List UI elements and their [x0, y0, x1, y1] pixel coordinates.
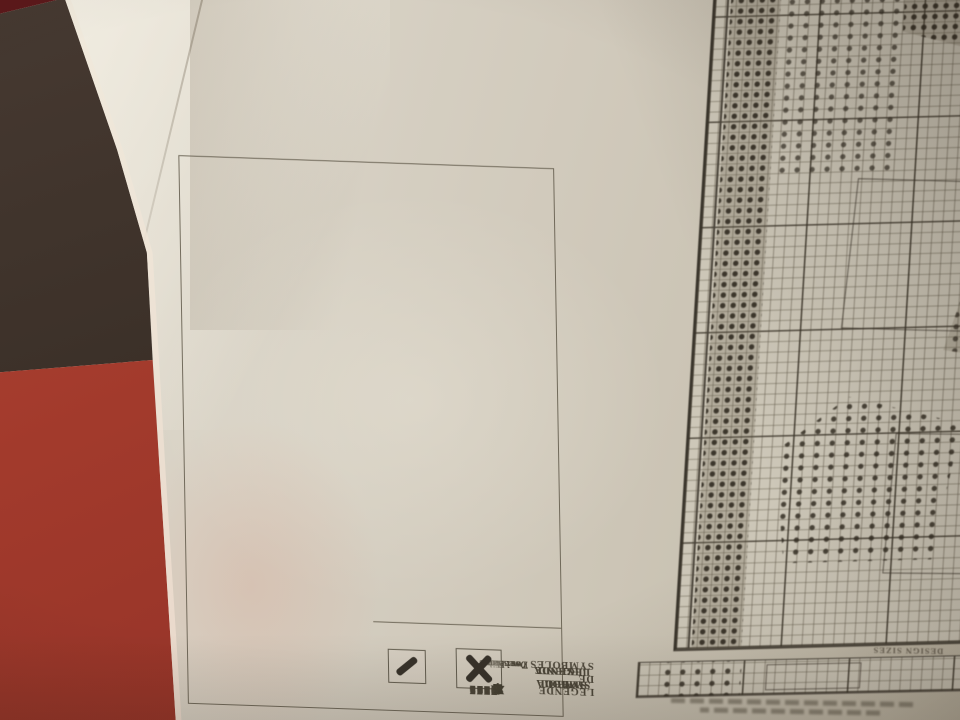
legend-document: SYMBOL LEGEND LEGENDE DE SYMBOLES SIMBOL…	[178, 155, 563, 717]
stitch-cluster	[896, 0, 960, 140]
dmc-code: 3834	[469, 681, 498, 697]
backstitch-outline	[765, 662, 862, 690]
design-sizes-caption: DESIGN SIZES	[858, 639, 958, 657]
stitch-cluster	[770, 0, 903, 179]
backstitch-outline	[841, 178, 960, 332]
chart-grid	[673, 0, 960, 651]
half-stitch-icon	[388, 649, 427, 684]
legend-box: SYMBOL LEGEND LEGENDE DE SYMBOLES SIMBOL…	[178, 155, 563, 717]
stitch-cluster	[655, 661, 742, 697]
photo-of-cross-stitch-pattern: SYMBOL LEGEND LEGENDE DE SYMBOLES SIMBOL…	[0, 0, 960, 720]
symbol-table: ·000 ▶301 ■310 ▨319 ✙321 ☂322 =453 ♯470 …	[506, 701, 562, 716]
backstitch-outline	[882, 433, 960, 575]
